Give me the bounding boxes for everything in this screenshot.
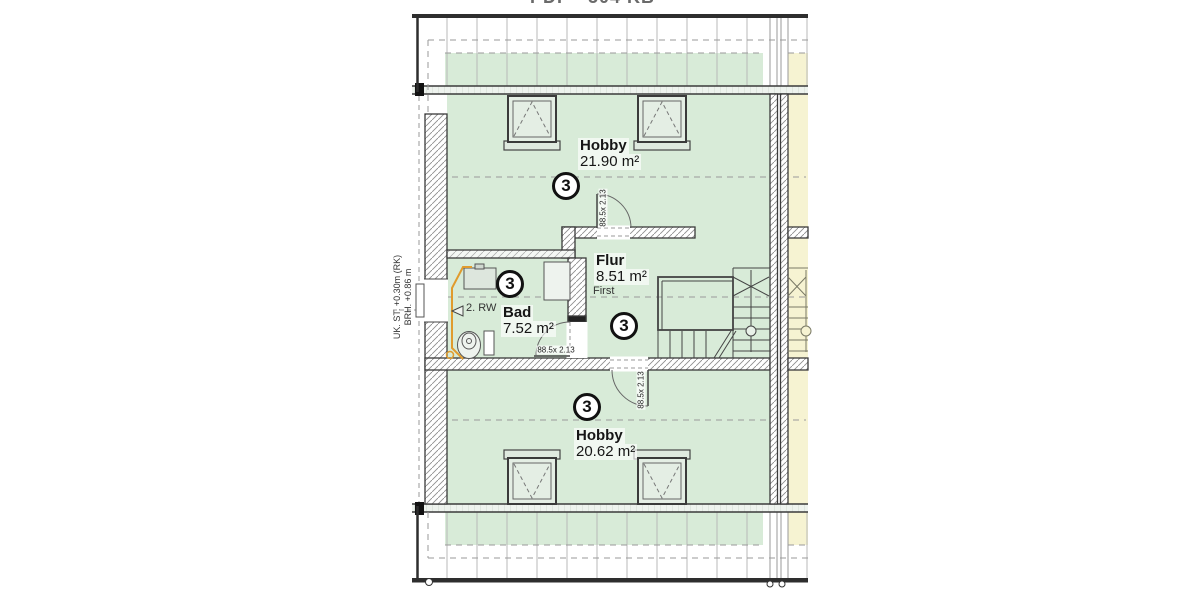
toilet-bowl xyxy=(458,332,481,359)
room-label-bad: Bad xyxy=(501,305,533,321)
roof-window-top-left xyxy=(504,96,560,150)
unit-circle-hobby-top: 3 xyxy=(552,172,580,200)
room-area-bad: 7.52 m² xyxy=(501,321,556,337)
room-label-hobby-bottom: Hobby xyxy=(574,428,625,444)
unit-circle-hobby-bottom: 3 xyxy=(573,393,601,421)
unit-circle-bad: 3 xyxy=(496,270,524,298)
sill-annotation-line2: BRH. +0.86 m xyxy=(403,255,414,339)
roof-window-bottom-left xyxy=(504,450,560,504)
shower-tray xyxy=(544,262,570,300)
document-title: PDF - 504 KB xyxy=(530,0,655,8)
door-size-label-bad: 88.5x 2.13 xyxy=(536,346,575,355)
washbasin xyxy=(464,268,496,289)
roof-window-bottom-right xyxy=(634,450,690,504)
room-fills xyxy=(445,53,808,545)
door-size-label-hobby-bottom: 88.5x 2.13 xyxy=(637,370,646,409)
room-area-flur: 8.51 m² xyxy=(594,269,649,285)
room-label-flur: Flur xyxy=(594,253,626,269)
ridge-label: First xyxy=(593,285,614,297)
room-area-hobby-bottom: 20.62 m² xyxy=(574,444,637,460)
unit-circle-flur: 3 xyxy=(610,312,638,340)
roof-window-top-right xyxy=(634,96,690,150)
floorplan-drawing xyxy=(0,0,1200,600)
partition-stub xyxy=(484,331,494,355)
sill-annotation: UK. ST. +0.30m (RK) BRH. +0.86 m xyxy=(392,255,415,339)
floorplan-page: { "document": { "title": "PDF - 504 KB" … xyxy=(0,0,1200,600)
sill-annotation-line1: UK. ST. +0.30m (RK) xyxy=(392,255,403,339)
door-size-label-hobby-top: 88.5x 2.13 xyxy=(599,188,608,227)
washbasin-faucet xyxy=(475,264,484,269)
rainwater-label: 2. RW xyxy=(466,302,496,314)
room-area-hobby-top: 21.90 m² xyxy=(578,154,641,170)
room-label-hobby-top: Hobby xyxy=(578,138,629,154)
